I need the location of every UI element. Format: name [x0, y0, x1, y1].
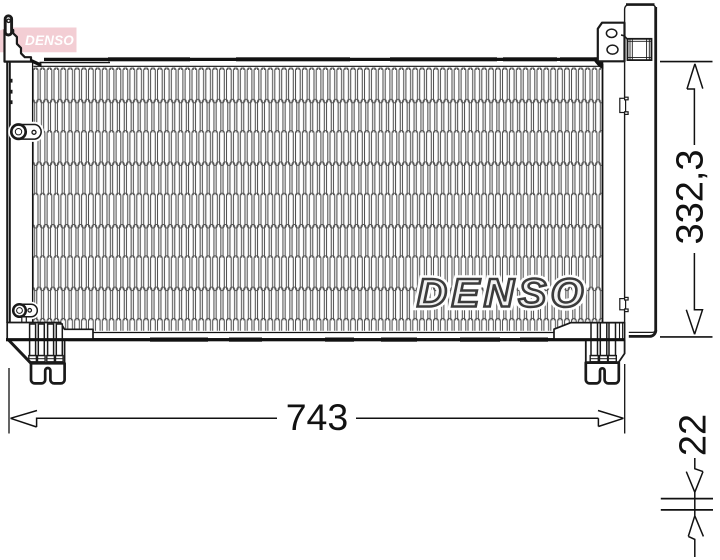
- svg-text:DENSO: DENSO: [25, 33, 74, 48]
- svg-text:332,3: 332,3: [670, 149, 712, 244]
- svg-text:DENSO: DENSO: [417, 271, 588, 316]
- svg-text:743: 743: [286, 396, 349, 438]
- svg-text:22: 22: [673, 414, 715, 456]
